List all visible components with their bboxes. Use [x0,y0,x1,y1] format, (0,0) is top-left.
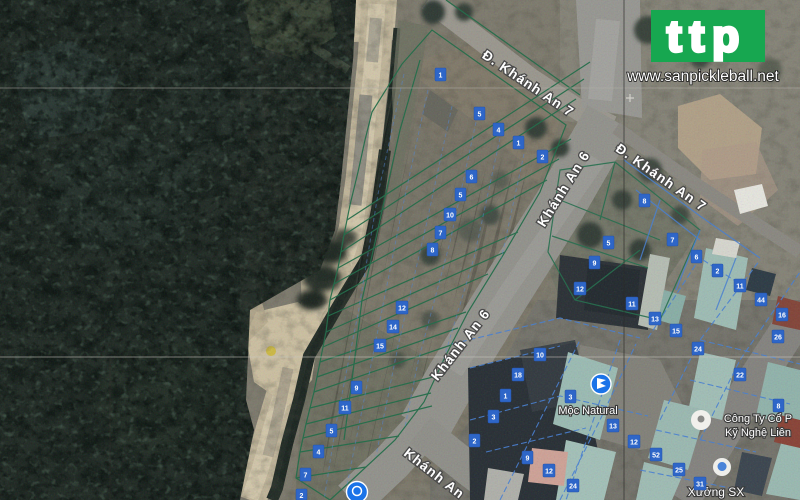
svg-text:4: 4 [497,128,501,135]
svg-text:2: 2 [541,155,545,162]
svg-text:1: 1 [517,141,521,148]
svg-text:52: 52 [652,453,660,460]
svg-text:11: 11 [736,284,744,291]
svg-text:9: 9 [526,456,530,463]
svg-text:5: 5 [607,241,611,248]
svg-text:11: 11 [341,406,349,413]
svg-text:9: 9 [355,386,359,393]
svg-text:12: 12 [398,306,406,313]
svg-text:12: 12 [630,440,638,447]
svg-text:11: 11 [628,302,636,309]
svg-text:ttp: ttp [667,12,747,61]
svg-text:12: 12 [545,469,553,476]
svg-text:16: 16 [778,313,786,320]
svg-text:25: 25 [675,468,683,475]
svg-text:2: 2 [300,493,304,500]
svg-text:44: 44 [757,298,765,305]
svg-text:24: 24 [694,347,702,354]
svg-text:Công Ty Cổ P: Công Ty Cổ P [724,413,792,425]
svg-text:6: 6 [695,255,699,262]
svg-text:3: 3 [492,415,496,422]
svg-text:Mộc Natural: Mộc Natural [558,405,617,417]
svg-text:www.sanpickleball.net: www.sanpickleball.net [626,68,779,85]
svg-text:5: 5 [459,193,463,200]
svg-text:13: 13 [651,317,659,324]
svg-text:5: 5 [478,112,482,119]
svg-text:24: 24 [569,484,577,491]
svg-text:10: 10 [446,213,454,220]
svg-text:14: 14 [389,325,397,332]
svg-text:8: 8 [643,199,647,206]
svg-text:13: 13 [609,424,617,431]
svg-text:Kỹ Nghệ Liên: Kỹ Nghệ Liên [725,427,791,439]
svg-text:3: 3 [569,395,573,402]
svg-text:4: 4 [317,450,321,457]
svg-text:22: 22 [736,373,744,380]
svg-text:7: 7 [304,473,308,480]
svg-text:5: 5 [330,429,334,436]
svg-text:26: 26 [774,335,782,342]
svg-text:2: 2 [716,269,720,276]
svg-text:8: 8 [431,248,435,255]
svg-text:8: 8 [777,404,781,411]
svg-text:2: 2 [473,439,477,446]
svg-text:1: 1 [439,73,443,80]
svg-text:12: 12 [576,287,584,294]
svg-text:18: 18 [514,373,522,380]
svg-text:10: 10 [536,353,544,360]
svg-text:6: 6 [470,175,474,182]
svg-text:7: 7 [671,238,675,245]
svg-text:1: 1 [504,394,508,401]
svg-text:15: 15 [672,329,680,336]
svg-text:9: 9 [593,261,597,268]
svg-text:7: 7 [439,231,443,238]
svg-text:15: 15 [376,344,384,351]
svg-text:31: 31 [696,482,704,489]
